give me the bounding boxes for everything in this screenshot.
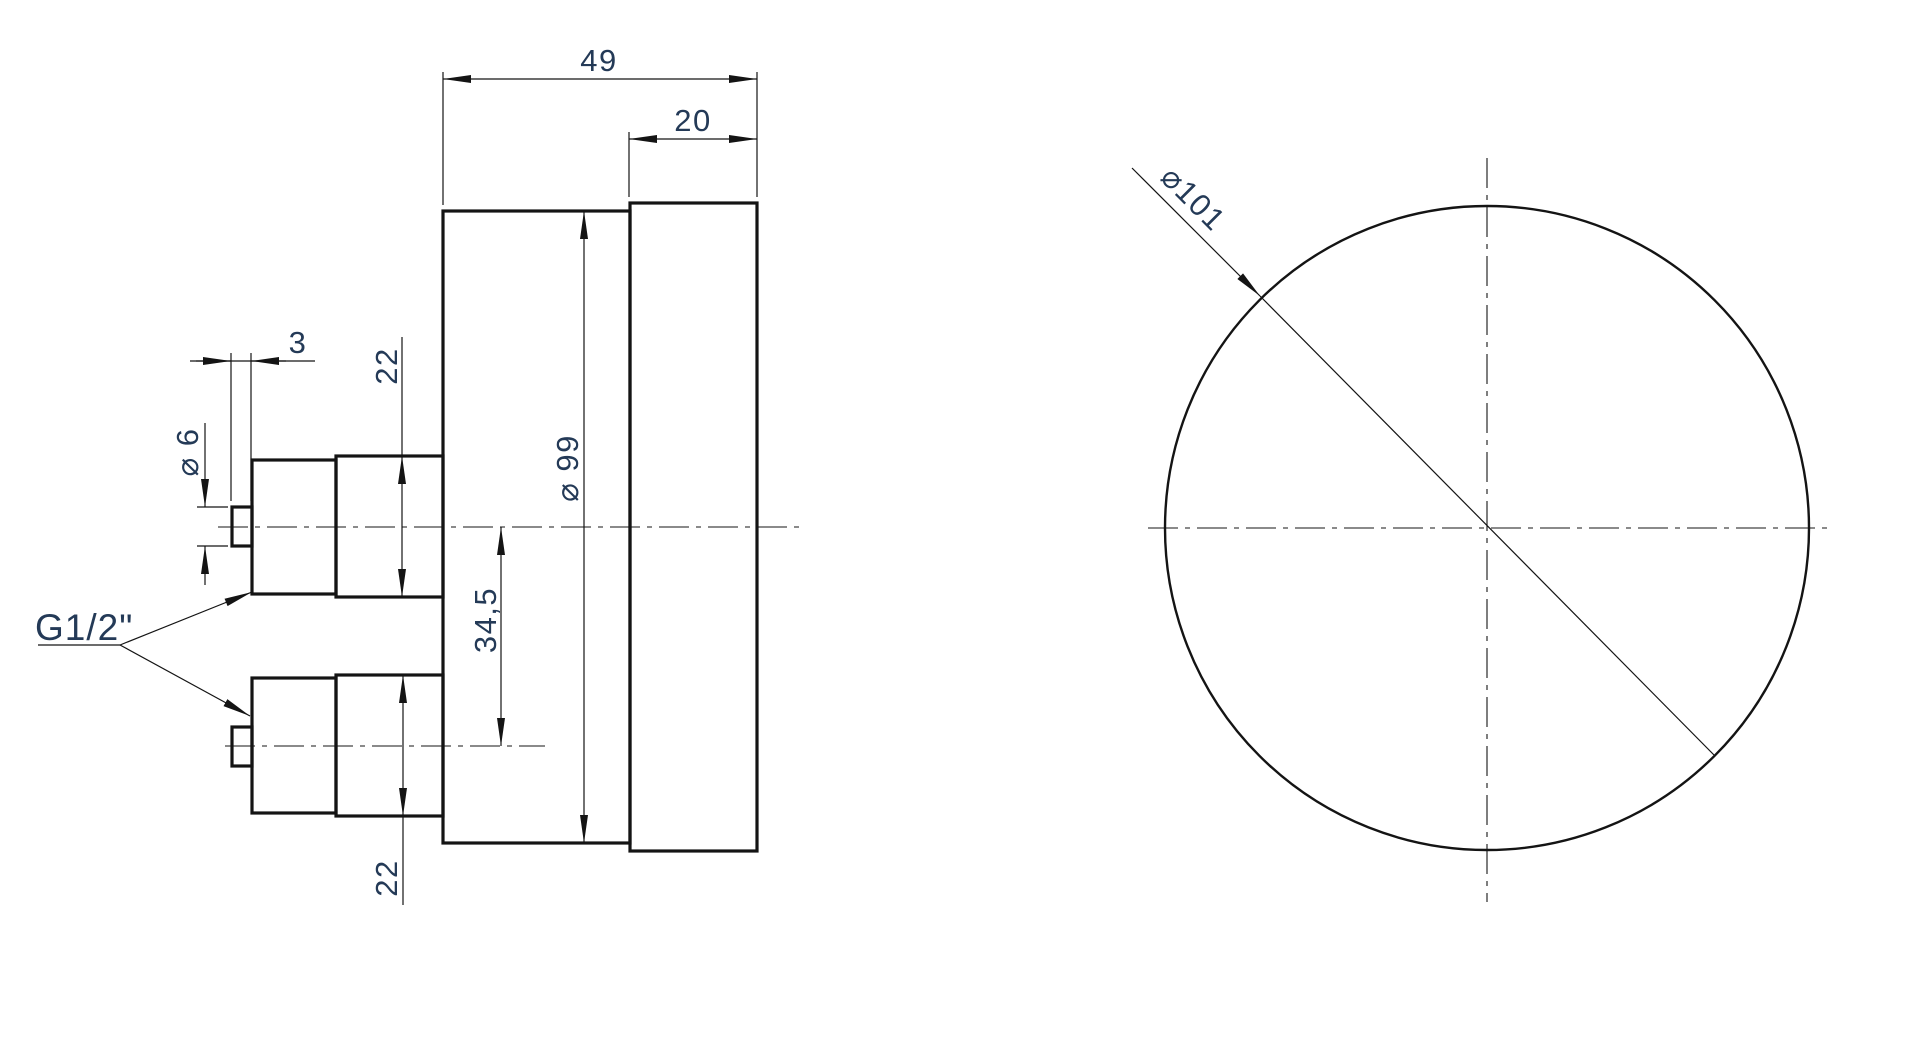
dim-axis-offset-label: 34,5 (468, 587, 503, 653)
leader-upper (120, 592, 252, 645)
dim-nipple-diameter-label: ⌀ 6 (170, 427, 205, 476)
dim-lower-boss: 22 (369, 675, 404, 905)
dim-bezel-diameter-label: ⌀101 (1154, 159, 1233, 238)
dim-upper-boss: 22 (369, 337, 404, 597)
front-view-centerlines (1148, 158, 1828, 902)
dim-bezel-depth: 20 (629, 103, 757, 197)
dim-axis-offset: 34,5 (468, 527, 503, 746)
thread-label: G1/2" (35, 607, 133, 648)
dim-upper-boss-label: 22 (369, 347, 404, 384)
dim-case-diameter-label: ⌀ 99 (550, 434, 585, 502)
dim-bezel-depth-label: 20 (674, 103, 711, 138)
front-view: ⌀101 (1132, 158, 1828, 902)
leader-lower (120, 645, 250, 716)
dim-nipple-diameter: ⌀ 6 (170, 423, 228, 585)
dim-bezel-diameter: ⌀101 (1132, 159, 1715, 756)
thread-callout: G1/2" (35, 592, 252, 716)
technical-drawing-canvas: 49 20 3 ⌀ 6 22 (0, 0, 1909, 1044)
dim-nipple-length-label: 3 (289, 325, 308, 360)
drawing-page: { "drawing": { "type": "engineering-draw… (0, 0, 1909, 1044)
side-view-centerlines (218, 527, 800, 746)
side-view: 49 20 3 ⌀ 6 22 (35, 43, 800, 905)
dim-lower-boss-label: 22 (369, 859, 404, 896)
dim-total-depth-label: 49 (580, 43, 617, 78)
